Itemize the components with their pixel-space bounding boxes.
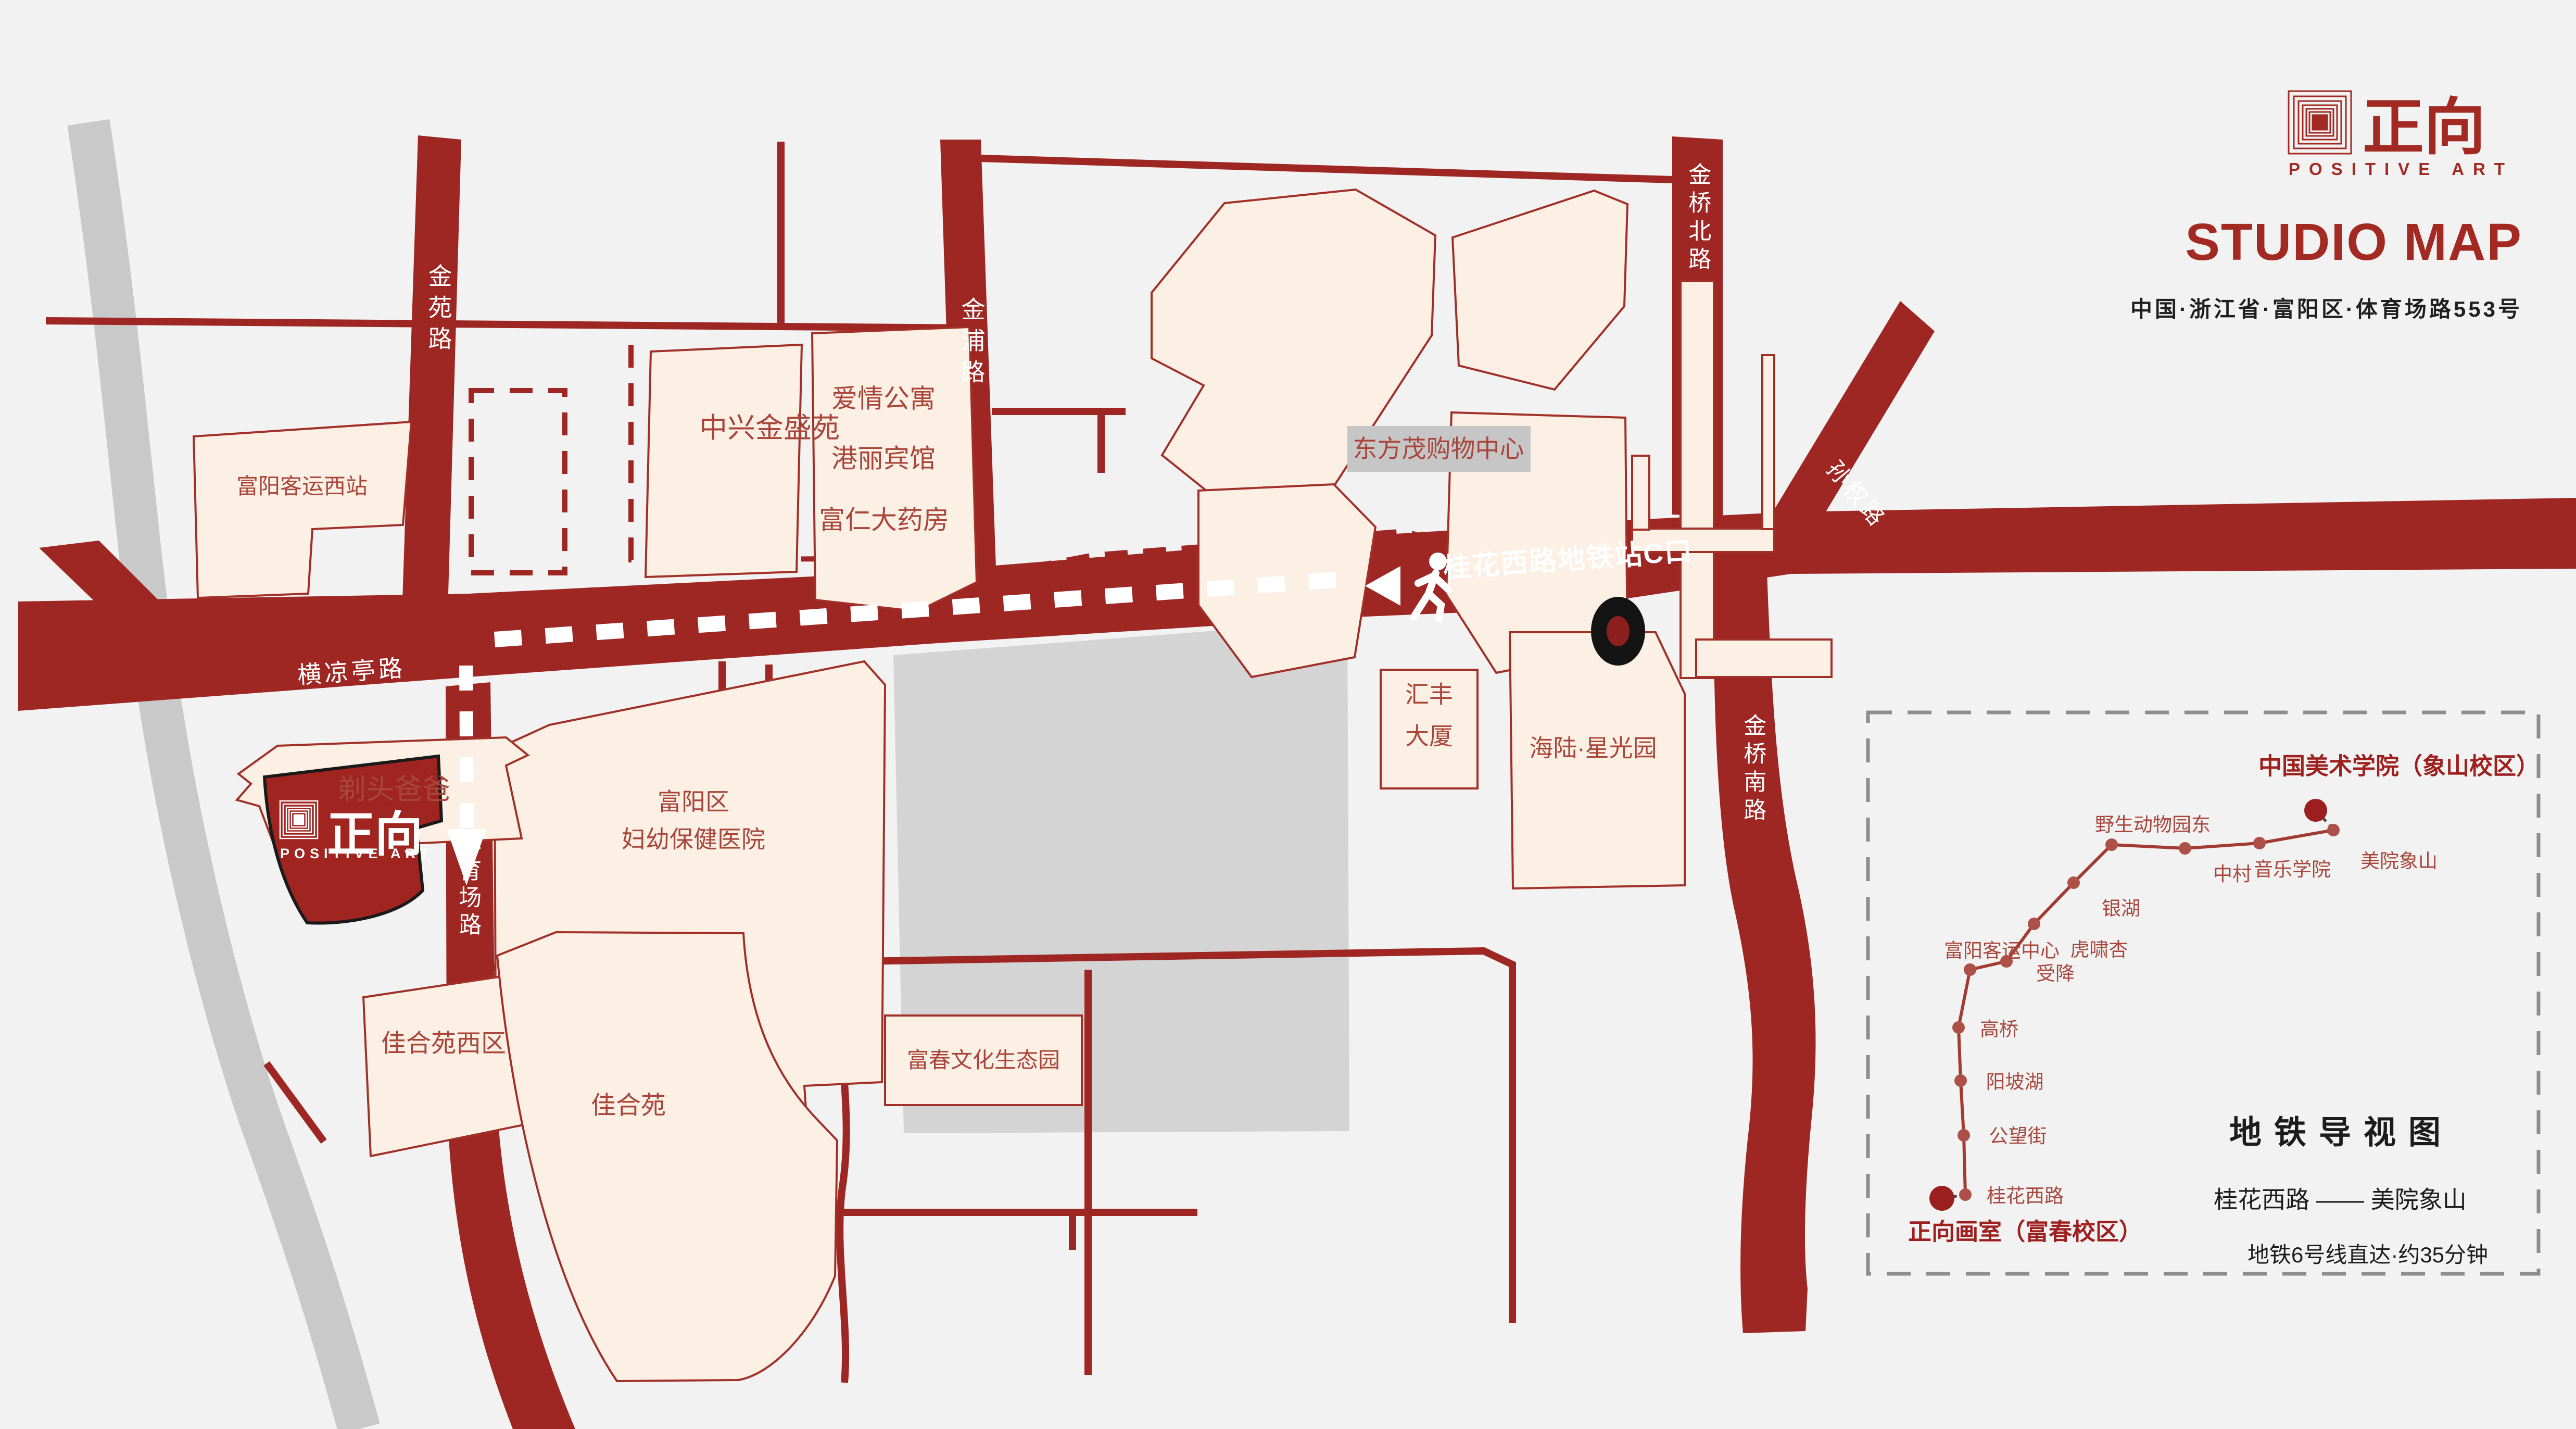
road-jinyuan bbox=[402, 135, 461, 616]
header-address: 中国·浙江省·富阳区·体育场路553号 bbox=[2130, 292, 2522, 323]
label-jiaheyuan-west: 佳合苑西区 bbox=[381, 1029, 506, 1058]
label-huifeng-1: 汇丰 bbox=[1405, 681, 1453, 709]
label-pharmacy: 富仁大药房 bbox=[819, 505, 949, 535]
inset-note: 地铁6号线直达·约35分钟 bbox=[2247, 1243, 2488, 1268]
label-jiaheyuan: 佳合苑 bbox=[591, 1091, 666, 1120]
thin-road-south-h2 bbox=[842, 1212, 1197, 1250]
inset-station-yeshengdongwuyuandong: 野生动物园东 bbox=[2095, 809, 2211, 837]
studio-logo-icon bbox=[280, 801, 318, 838]
header-brand-cn: 正向 bbox=[2363, 77, 2485, 166]
inset-station-gongwangjie: 公望街 bbox=[1989, 1120, 2047, 1148]
inset-station-zhongcun: 中村 bbox=[2213, 858, 2252, 886]
studio-brand-en: POSITIVE ART bbox=[280, 846, 434, 862]
inset-station-meiyuanxiangshan: 美院象山 bbox=[2360, 845, 2438, 873]
inset-endpoint-top: 中国美术学院（象山校区） bbox=[2258, 747, 2540, 781]
label-west-bus-station: 富阳客运西站 bbox=[236, 474, 368, 499]
brand-logo-icon bbox=[2289, 91, 2351, 154]
inset-station-yinhu: 银湖 bbox=[2102, 893, 2140, 921]
building-dfm-2 bbox=[1453, 191, 1627, 390]
thin-road-top bbox=[946, 157, 1672, 180]
station-strip bbox=[1681, 281, 1714, 678]
station-prong-right bbox=[1762, 355, 1774, 529]
inset-station-guihuaxilu: 桂花西路 bbox=[1987, 1180, 2064, 1208]
inset-station-shouxiang: 受降 bbox=[2036, 958, 2075, 986]
inset-studio-dot bbox=[1929, 1186, 1954, 1211]
label-huifeng-2: 大厦 bbox=[1405, 723, 1453, 750]
inset-station-gaoqiao: 高桥 bbox=[1980, 1013, 2018, 1042]
label-hailu: 海陆·星光园 bbox=[1529, 735, 1657, 762]
label-apartment: 爱情公寓 bbox=[831, 384, 936, 414]
station-lower-bar bbox=[1696, 640, 1832, 677]
road-label-jinyuan: 金苑路 bbox=[425, 264, 452, 357]
inset-route: 桂花西路 —— 美院象山 bbox=[2214, 1186, 2467, 1214]
inset-endpoint-bottom: 正向画室（富春校区） bbox=[1908, 1213, 2142, 1247]
label-eco-park: 富春文化生态园 bbox=[907, 1048, 1060, 1073]
metro-exit-dot-inner bbox=[1607, 616, 1630, 646]
building-west-bus-station bbox=[194, 422, 411, 598]
road-label-jinqiao-south: 金桥南路 bbox=[1739, 713, 1766, 826]
thin-road-top-left bbox=[46, 321, 979, 328]
thin-road-jinpu-east bbox=[992, 411, 1126, 473]
label-zhongxing: 中兴金盛苑 bbox=[699, 412, 840, 444]
inset-academy-dot bbox=[2304, 799, 2327, 822]
studio-map-poster: 金苑路 金浦路 金桥北路 金桥南路 体育场路 孙权路 横凉亭路 桂花西路地铁站C… bbox=[0, 0, 2576, 1429]
label-hospital-1: 富阳区 bbox=[658, 788, 729, 816]
inset-station-huxiaoxing: 虎啸杏 bbox=[2070, 934, 2128, 962]
inset-station-yinyuexueyuan: 音乐学院 bbox=[2254, 854, 2331, 882]
dashed-block-outline bbox=[471, 391, 565, 573]
header-brand-en: POSITIVE ART bbox=[2289, 159, 2514, 179]
label-hospital-2: 妇幼保健医院 bbox=[622, 826, 765, 854]
road-label-jinpu: 金浦路 bbox=[958, 297, 986, 391]
label-hotel: 港丽宾馆 bbox=[831, 444, 936, 474]
road-jinqiao-south bbox=[1714, 572, 1816, 1333]
road-label-jinqiao-north: 金桥北路 bbox=[1684, 162, 1711, 275]
road-label-tiyuchang: 体育场路 bbox=[454, 831, 481, 939]
inset-station-yangpohu: 阳坡湖 bbox=[1986, 1066, 2044, 1094]
building-zhongxing bbox=[646, 345, 802, 577]
station-prong-left bbox=[1632, 456, 1649, 530]
inset-title: 地铁导视图 bbox=[2229, 1114, 2453, 1151]
label-dongfangmao: 东方茂购物中心 bbox=[1353, 435, 1524, 463]
page-title: STUDIO MAP bbox=[2185, 212, 2522, 272]
